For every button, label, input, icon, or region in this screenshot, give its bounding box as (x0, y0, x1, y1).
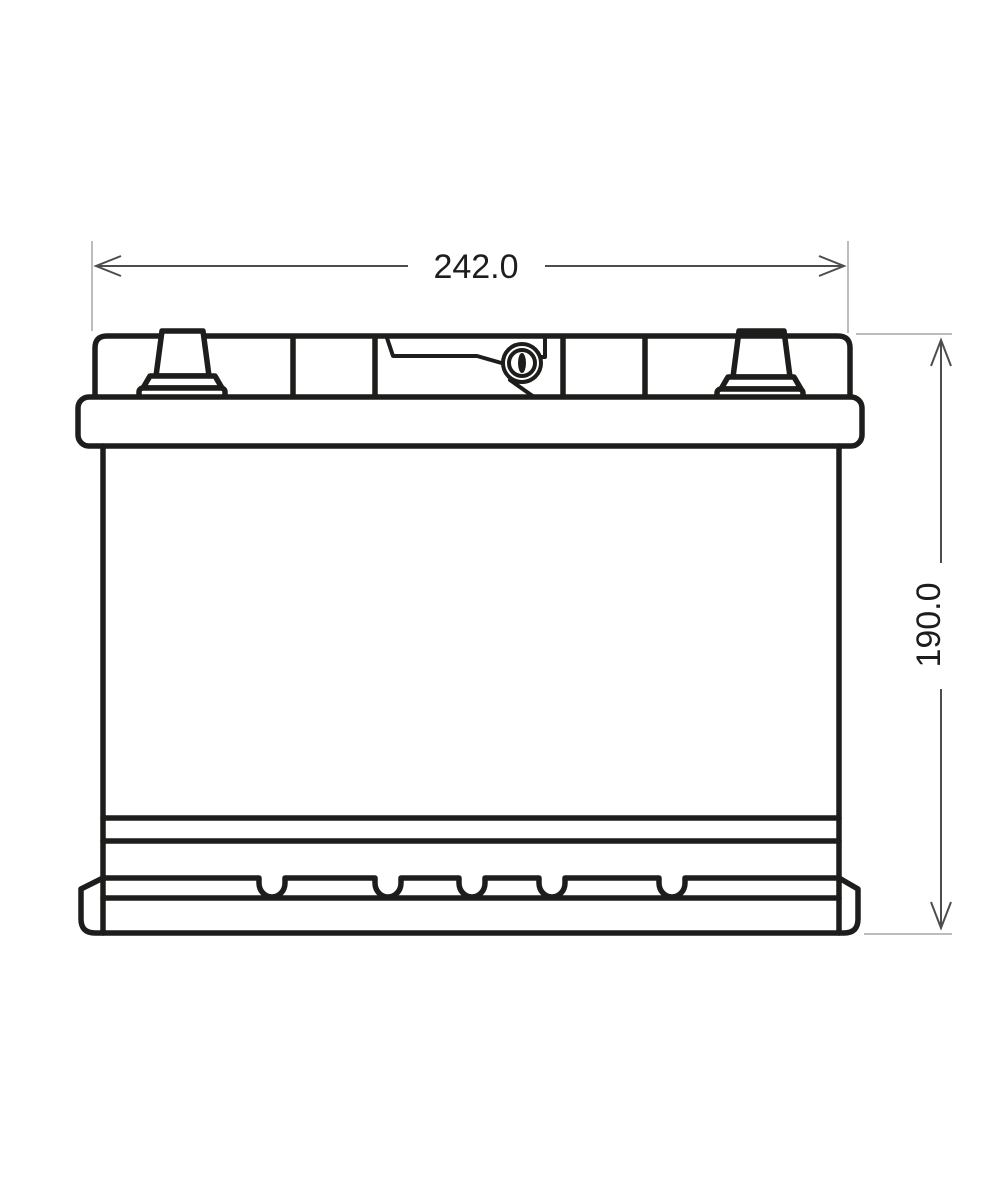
base-foot (81, 878, 858, 933)
base-notch-ledge (103, 878, 839, 897)
negative-terminal-post (156, 331, 209, 376)
height-dimension: 190.0 (856, 334, 952, 934)
battery-technical-drawing: 242.0 190.0 (0, 0, 1000, 1200)
battery-outline (78, 331, 862, 933)
width-dimension-value: 242.0 (433, 248, 518, 286)
width-dimension: 242.0 (92, 241, 848, 333)
battery-dimension-diagram: 242.0 190.0 (0, 0, 1000, 1200)
battery-flange (78, 397, 862, 446)
vent-plug-slot (518, 353, 526, 373)
height-dimension-value: 190.0 (910, 582, 948, 667)
